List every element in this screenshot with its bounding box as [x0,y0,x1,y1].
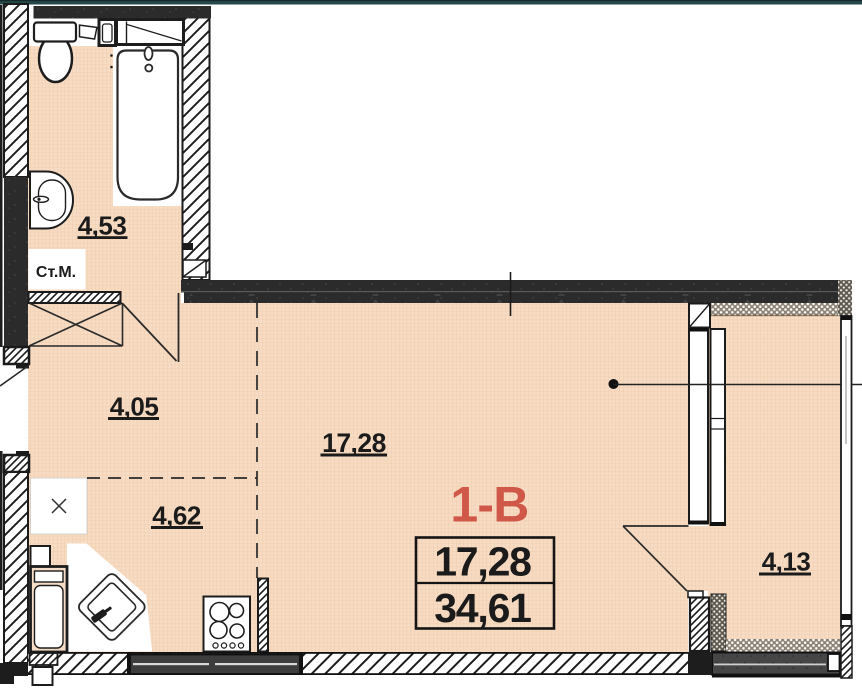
svg-text:17,28: 17,28 [434,539,531,585]
svg-text:1-В: 1-В [450,477,528,533]
svg-text:Ст.М.: Ст.М. [36,264,76,281]
svg-text:4,53: 4,53 [78,211,127,241]
svg-text:34,61: 34,61 [434,585,531,631]
svg-text:4,13: 4,13 [762,547,811,577]
